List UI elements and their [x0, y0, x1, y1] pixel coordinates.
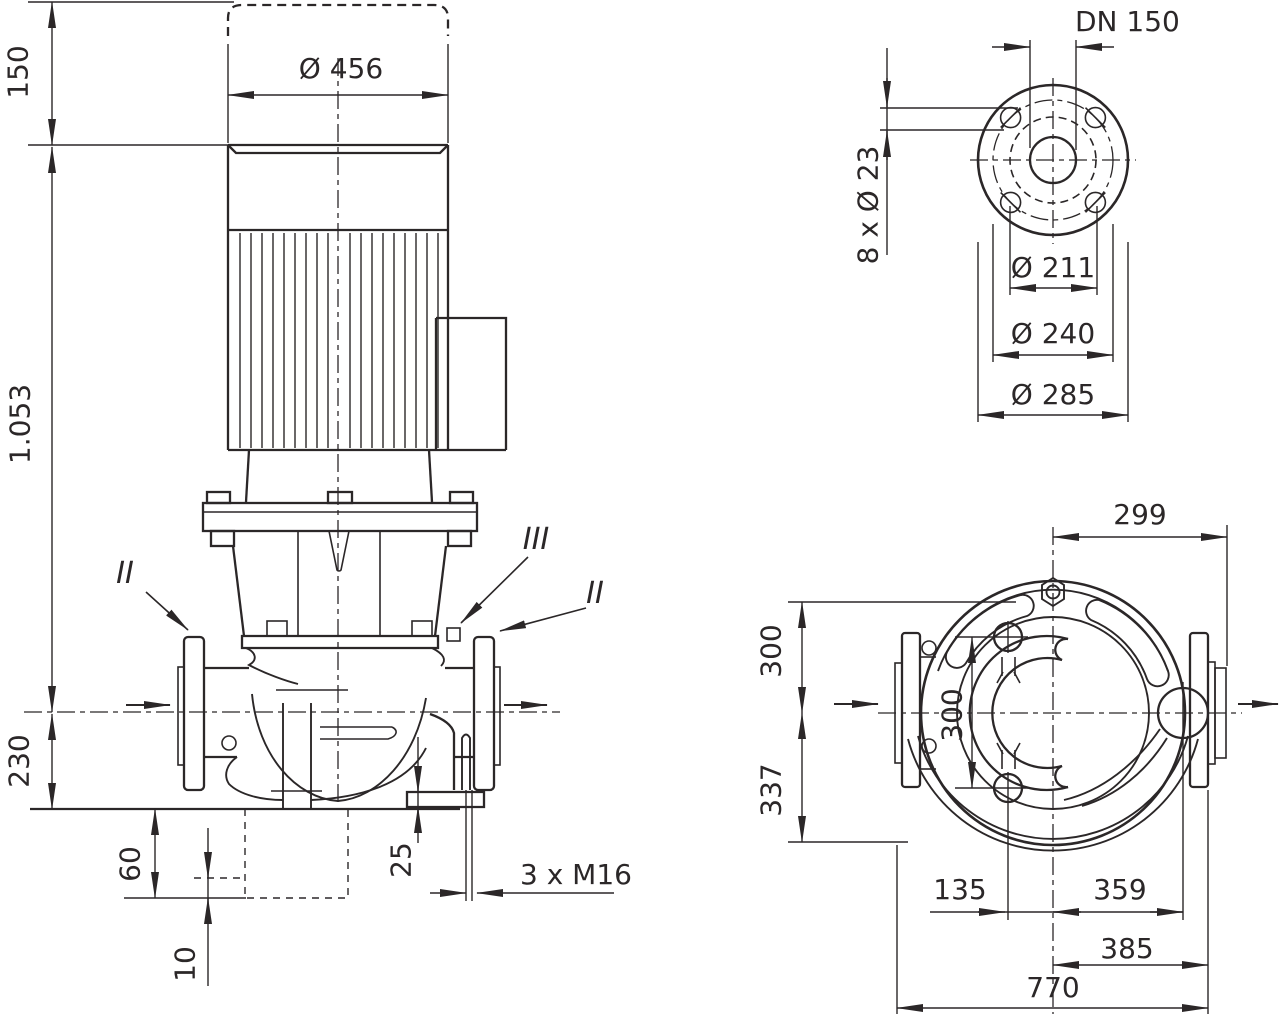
- dim-label-motor-diameter: Ø 456: [299, 52, 383, 85]
- dim-label-25: 25: [385, 842, 418, 878]
- dim-label-150: 150: [2, 45, 35, 98]
- motor-ribs: [240, 233, 438, 448]
- foundation-block-dashed: [245, 809, 348, 898]
- dim-label-bolt-holes: 8 x Ø 23: [852, 146, 885, 265]
- front-view: Ø 456: [24, 5, 560, 901]
- suction-flange: [184, 637, 204, 790]
- dim-label-total-height: 1.053: [4, 384, 37, 464]
- dim-label-d240: Ø 240: [1011, 317, 1095, 350]
- dim-label-60: 60: [114, 846, 147, 882]
- dim-label-foot-bolts: 3 x M16: [520, 858, 632, 891]
- section-mark-right: II: [586, 576, 604, 611]
- motor-fan-cover-top: [228, 5, 448, 36]
- dim-label-135: 135: [933, 873, 986, 906]
- dim-label-10: 10: [169, 946, 202, 982]
- top-view: [834, 527, 1278, 1014]
- pump-dimensional-drawing: Ø 456: [0, 0, 1280, 1024]
- dim-label-337: 337: [755, 763, 788, 816]
- dim-label-230: 230: [3, 734, 36, 787]
- dim-label-299: 299: [1113, 498, 1166, 531]
- dim-label-d285: Ø 285: [1011, 378, 1095, 411]
- technical-drawing-canvas: Ø 456: [0, 0, 1280, 1024]
- section-mark-left: II: [116, 556, 134, 591]
- dim-label-dn150: DN 150: [1075, 5, 1180, 38]
- support-foot: [430, 714, 454, 790]
- casing-shoulder-left: [246, 648, 298, 684]
- dim-label-770: 770: [1026, 971, 1079, 1004]
- discharge-flange: [474, 637, 494, 790]
- flange-detail-view: DN 150 8 x Ø 23 Ø 211 Ø 240 Ø 285: [852, 5, 1180, 422]
- terminal-box: [436, 318, 506, 450]
- top-view-discharge-flange: [1190, 633, 1208, 787]
- volute-inner-wall: [252, 694, 426, 801]
- front-view-dimensions: 150 1.053 230 60 10 25 3 x M16 II III II: [2, 2, 632, 986]
- vent-slot-right: [1086, 600, 1169, 686]
- dim-label-300-left: 300: [755, 624, 788, 677]
- motor-stool-plate: [203, 503, 477, 531]
- dim-label-300-ports: 300: [936, 688, 969, 741]
- top-view-dimensions: 299 300 337 300 135 359 385 770: [755, 498, 1228, 1014]
- dim-label-d211: Ø 211: [1011, 251, 1095, 284]
- section-mark-mid: III: [523, 522, 550, 557]
- dim-label-359: 359: [1093, 873, 1146, 906]
- dim-label-385: 385: [1100, 932, 1153, 965]
